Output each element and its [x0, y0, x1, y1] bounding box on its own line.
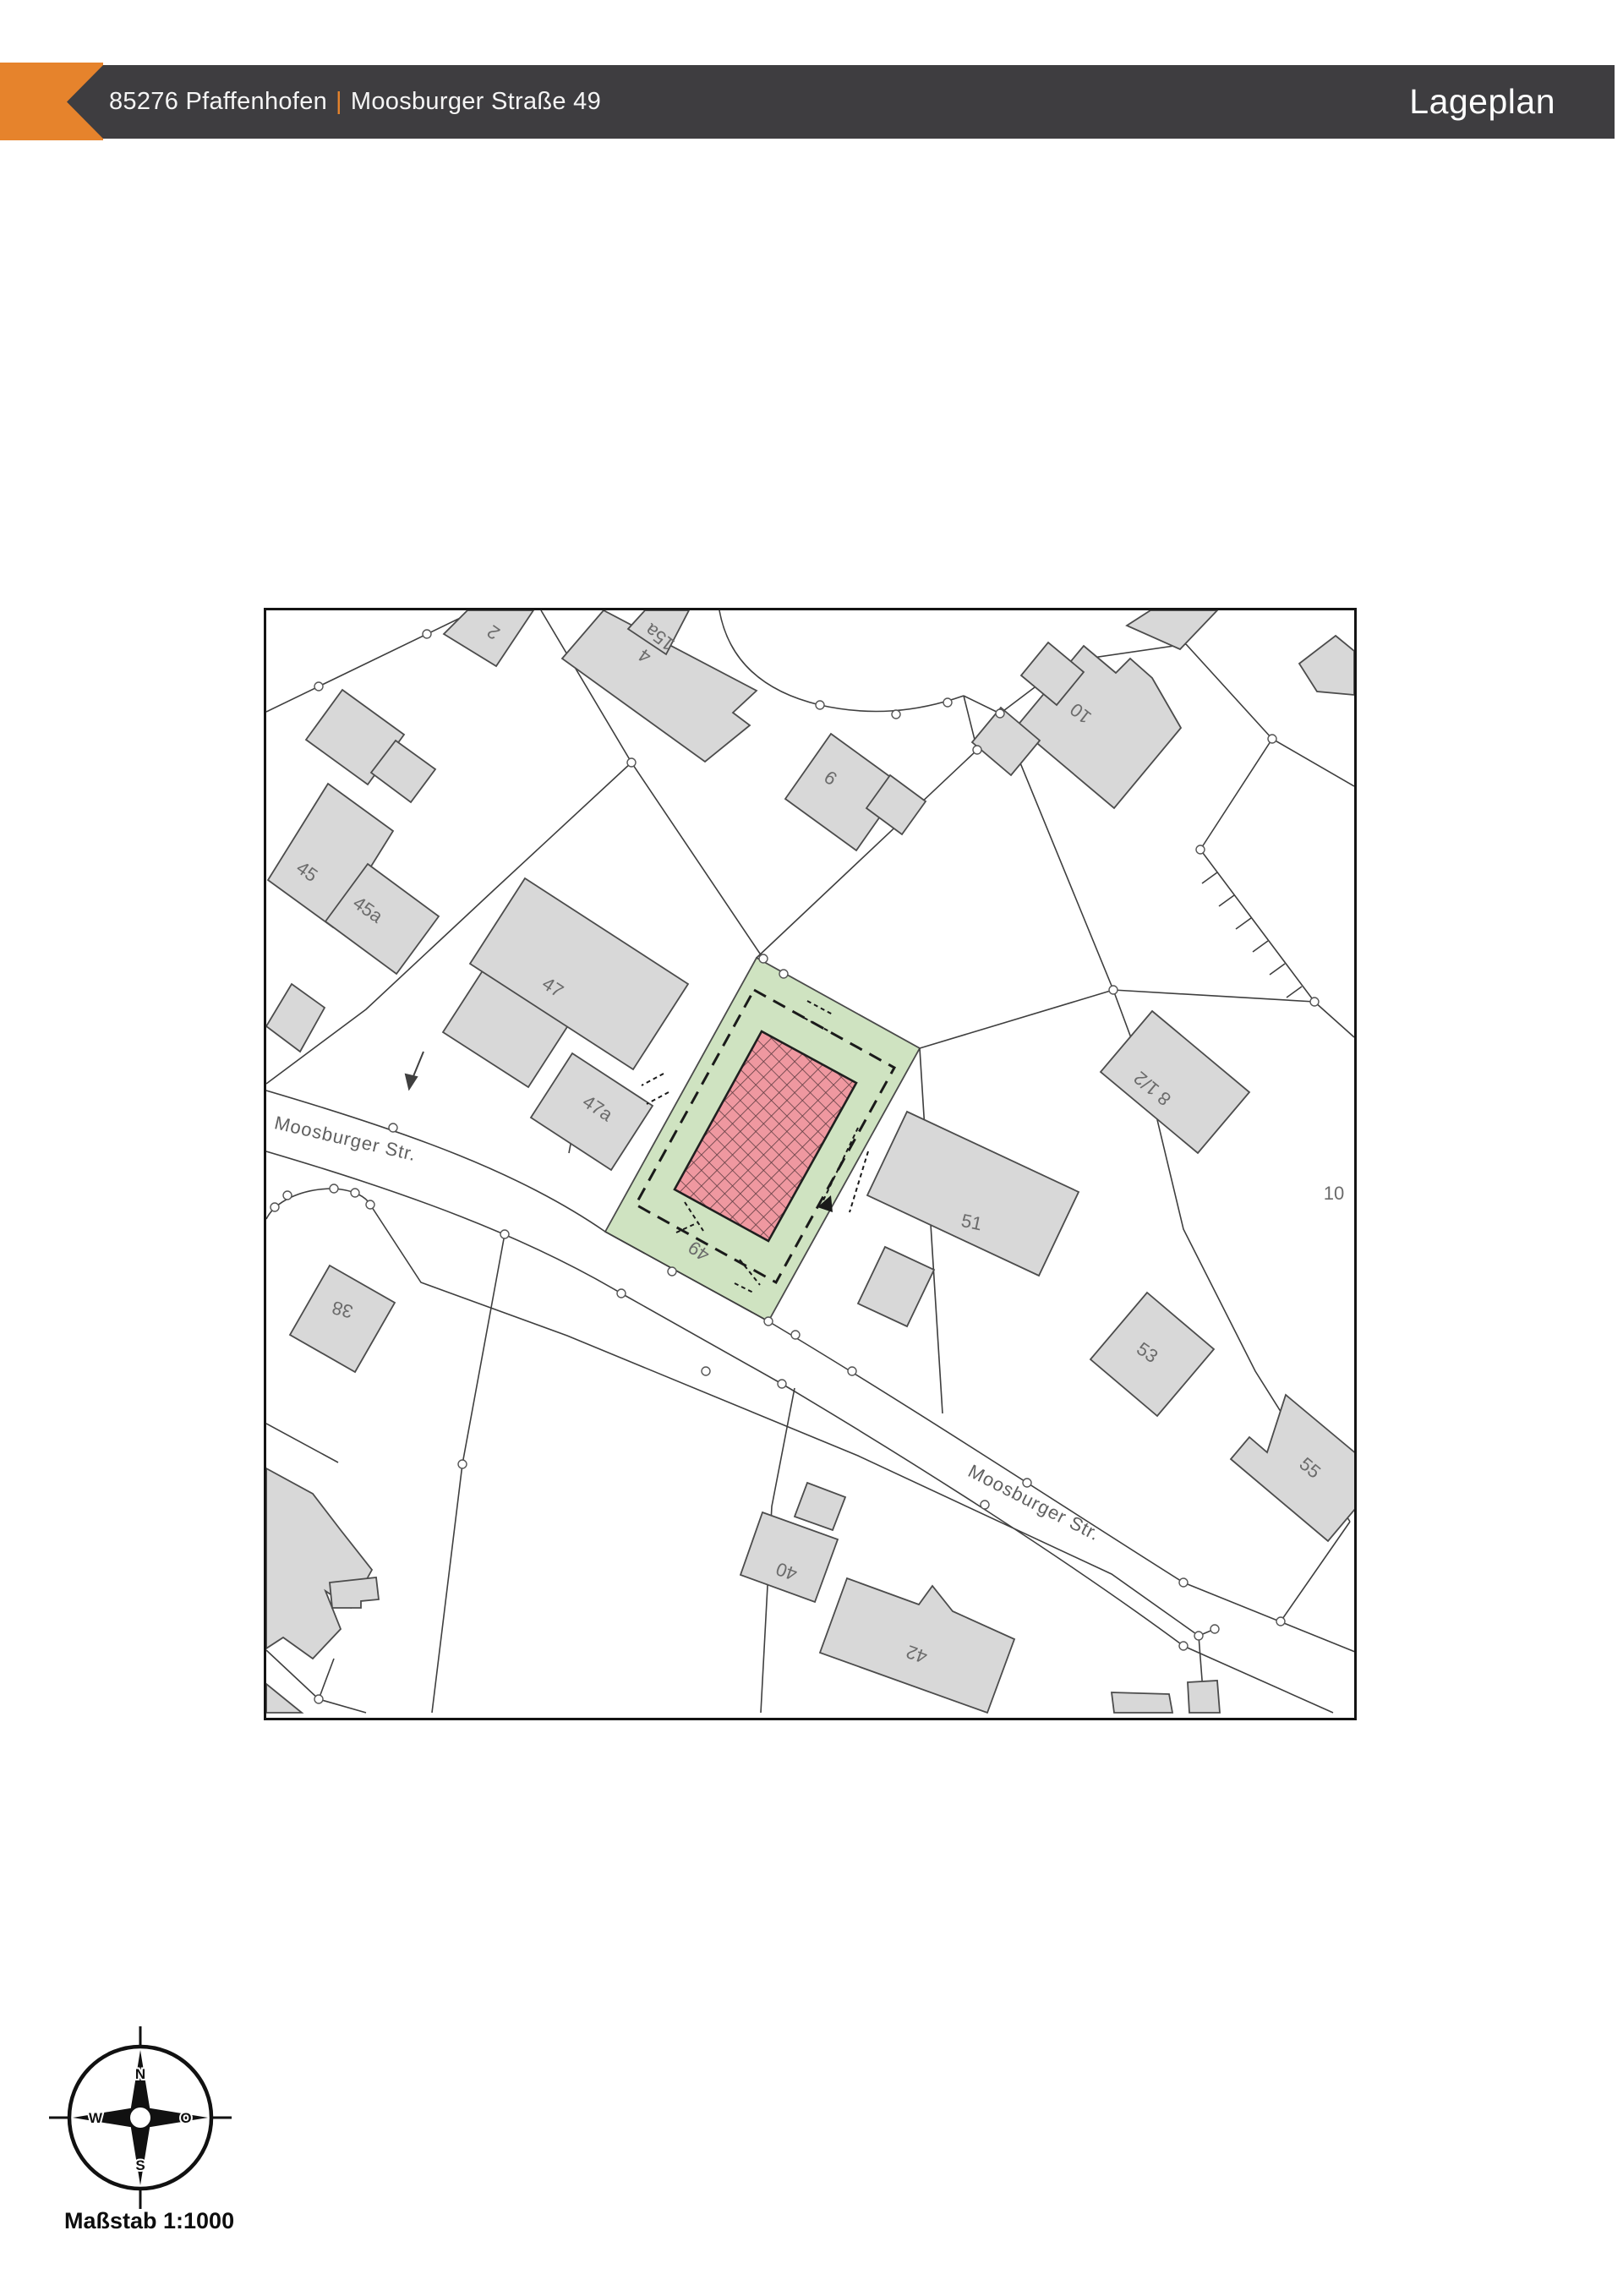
building-small-left — [266, 984, 325, 1052]
map-label-10b: 10 — [1324, 1183, 1344, 1204]
header-zip-city: 85276 Pfaffenhofen — [109, 88, 327, 115]
building-8half — [1101, 1011, 1249, 1153]
header-separator: | — [327, 88, 351, 115]
building-small-bottomleft — [330, 1577, 379, 1608]
compass-rose: N O S W — [46, 2024, 234, 2211]
map-label-51: 51 — [959, 1210, 984, 1235]
site-plan-map: 2 4 15a 9 10 8 1/2 45 45a 47 47a 38 49 5… — [264, 608, 1357, 1720]
scale-label: Maßstab 1:1000 — [64, 2208, 234, 2234]
compass-label-west: W — [89, 2110, 103, 2126]
building-40-annex — [795, 1483, 845, 1530]
building-cluster-left — [266, 1468, 372, 1659]
compass-label-east: O — [180, 2110, 191, 2126]
compass-hub — [130, 2107, 150, 2128]
building-51-annex — [858, 1247, 934, 1326]
building-topright-a — [1127, 610, 1217, 649]
site-plan-svg: 2 4 15a 9 10 8 1/2 45 45a 47 47a 38 49 5… — [266, 610, 1354, 1718]
driveway-arrow-icon — [406, 1052, 424, 1089]
compass-label-south: S — [135, 2157, 145, 2173]
header-address: 85276 Pfaffenhofen|Moosburger Straße 49 — [109, 88, 601, 116]
building-51 — [867, 1112, 1079, 1276]
building-55 — [1231, 1395, 1354, 1541]
header-bar: 85276 Pfaffenhofen|Moosburger Straße 49 … — [67, 65, 1615, 139]
header-street: Moosburger Straße 49 — [351, 88, 601, 115]
steps-symbol — [1202, 872, 1302, 998]
building-corner-triangle — [266, 1684, 302, 1713]
compass-label-north: N — [135, 2066, 145, 2082]
street-label-moosburger-1: Moosburger Str. — [272, 1112, 418, 1165]
lageplan-page: 85276 Pfaffenhofen|Moosburger Straße 49 … — [0, 0, 1623, 2296]
building-bottom-b — [1188, 1681, 1220, 1713]
page-title: Lageplan — [1409, 82, 1555, 122]
building-bottom-a — [1112, 1692, 1172, 1713]
building-topright-b — [1299, 636, 1354, 695]
